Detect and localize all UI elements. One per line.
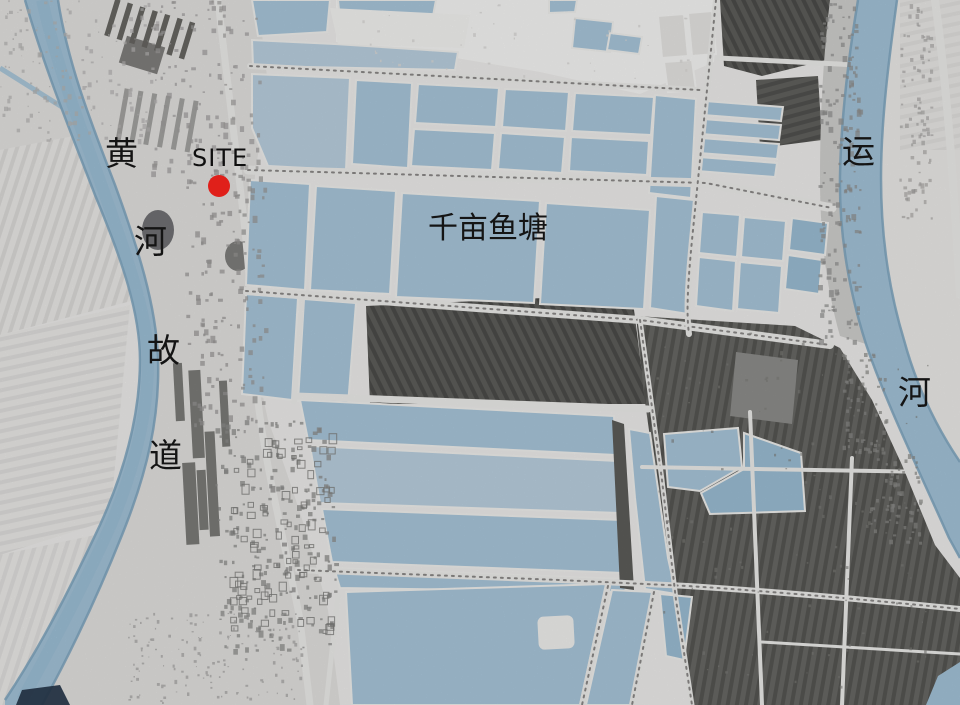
label-left-river-char-he: 河	[134, 225, 167, 258]
label-fish-pond: 千亩鱼塘	[428, 214, 548, 244]
map-figure: 黄 河 故 道 SITE 千亩鱼塘 运 河	[0, 0, 960, 705]
label-left-river-char-gu: 故	[147, 334, 180, 367]
site-label: SITE	[192, 146, 248, 170]
label-left-river-char-huang: 黄	[105, 137, 138, 170]
label-right-river-char-yun: 运	[842, 135, 875, 168]
grain-overlay	[0, 0, 960, 705]
label-left-river-char-dao: 道	[149, 439, 182, 472]
satellite-map	[0, 0, 960, 705]
site-marker	[208, 175, 230, 197]
label-right-river-char-he: 河	[898, 376, 931, 409]
